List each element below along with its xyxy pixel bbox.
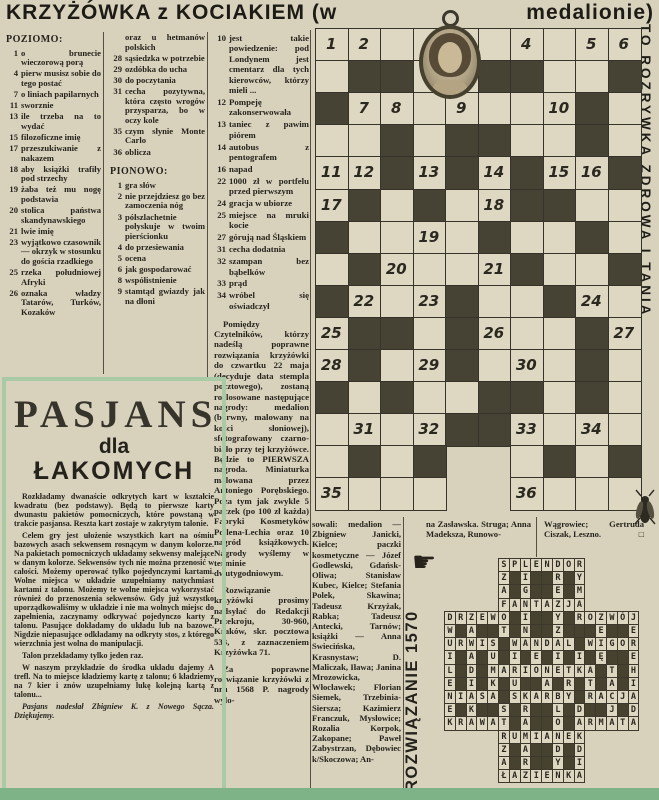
clue-item: 9stamtąd gwiazdy jak na dłoni bbox=[108, 287, 205, 306]
grid-cell[interactable] bbox=[608, 317, 642, 351]
grid-cell[interactable] bbox=[543, 124, 577, 158]
magazine-puzzle-page: KRZYŻÓWKA z KOCIAKIEM (w medalionie) TO … bbox=[0, 0, 659, 800]
grid-cell[interactable] bbox=[380, 92, 414, 126]
clue-item: 21lwie imię bbox=[4, 227, 101, 237]
previous-results-paragraph: Za poprawne rozwiązanie krzyżówki z nru … bbox=[214, 664, 309, 706]
grid-cell-black bbox=[478, 381, 512, 415]
clue-text: 1000 zł w portfelu przed pierwszym bbox=[229, 176, 309, 197]
pasjans-paragraph: Talon przekładamy tylko jeden raz. bbox=[14, 651, 214, 660]
grid-cell[interactable] bbox=[575, 477, 609, 511]
grid-cell[interactable] bbox=[543, 92, 577, 126]
grid-cell[interactable] bbox=[478, 253, 512, 287]
clue-number: 4 bbox=[108, 243, 125, 253]
solution-cell-letter: K bbox=[574, 730, 586, 744]
clue-text: górują nad Śląskiem bbox=[229, 232, 309, 242]
clue-number: 21 bbox=[4, 227, 21, 237]
grid-cell[interactable] bbox=[575, 445, 609, 479]
grid-cell[interactable] bbox=[348, 477, 382, 511]
clue-number: 34 bbox=[212, 290, 229, 311]
clue-item: 2nie przejdziesz go bez zamoczenia nóg bbox=[108, 192, 205, 211]
clue-item: 25miejsce na mruki kocie bbox=[212, 210, 309, 231]
grid-cell-black bbox=[315, 92, 349, 126]
clue-item: 31cecha pozytywna, która często wrogów p… bbox=[108, 87, 205, 125]
grid-cell[interactable] bbox=[608, 413, 642, 447]
clue-text: o liniach papilarnych bbox=[21, 90, 101, 100]
clue-item: 26oznaka władzy Tatarów, Turków, Kozaków bbox=[4, 289, 101, 318]
clue-text: wyjątkowo czasownik — okrzyk w stosunku … bbox=[21, 238, 101, 267]
grid-cell-black bbox=[510, 253, 544, 287]
clue-number: 23 bbox=[4, 238, 21, 267]
clues-column-3: 10jest takie powiedzenie: pod Londynem j… bbox=[212, 33, 309, 711]
clue-item: 13ile trzeba na to wydać bbox=[4, 112, 101, 131]
grid-cell[interactable] bbox=[510, 477, 544, 511]
winners-column-3-text: Wągrowiec; Gertruda Ciszak, Leszno. bbox=[544, 519, 644, 539]
clue-number: 1 bbox=[4, 49, 21, 68]
grid-cell[interactable] bbox=[543, 349, 577, 383]
clue-text: taniec z pawim piórem bbox=[229, 119, 309, 140]
clue-text: sąsiedzka w potrzebie bbox=[125, 54, 205, 64]
grid-cell[interactable] bbox=[608, 92, 642, 126]
clue-item: 20stolica państwa skandynawskiego bbox=[4, 206, 101, 225]
clue-text: ocena bbox=[125, 254, 205, 264]
grid-cell[interactable] bbox=[413, 413, 447, 447]
clue-text: półszlachetnie połyskuje w twoim pierści… bbox=[125, 213, 205, 242]
clue-item: 19żaba też mu nogę podstawia bbox=[4, 185, 101, 204]
clue-item: 14autobus z pentografem bbox=[212, 142, 309, 163]
medallion-portrait bbox=[417, 10, 483, 98]
grid-cell[interactable] bbox=[348, 381, 382, 415]
grid-cell-black bbox=[575, 381, 609, 415]
grid-cell[interactable] bbox=[608, 28, 642, 62]
grid-cell[interactable] bbox=[543, 253, 577, 287]
solution-cell-letter: I bbox=[574, 756, 586, 770]
grid-cell-black bbox=[348, 445, 382, 479]
grid-cell[interactable] bbox=[380, 413, 414, 447]
grid-cell[interactable] bbox=[608, 381, 642, 415]
clues-column-1: POZIOMO: 1o brunecie wieczorową porą4pie… bbox=[4, 33, 101, 319]
clue-number: 13 bbox=[4, 112, 21, 131]
solution-cell-letter: A bbox=[574, 598, 586, 612]
grid-cell[interactable] bbox=[413, 253, 447, 287]
pasjans-text: Rozkładamy dwanaście odkrytych kart w ks… bbox=[14, 492, 214, 720]
grid-cell-black bbox=[510, 189, 544, 223]
page-title: KRZYŻÓWKA z KOCIAKIEM (w medalionie) bbox=[6, 1, 654, 25]
grid-cell-black bbox=[478, 413, 512, 447]
grid-cell[interactable] bbox=[608, 189, 642, 223]
grid-cell[interactable] bbox=[575, 28, 609, 62]
grid-cell[interactable] bbox=[575, 253, 609, 287]
clue-item: 24gracja w ubiorze bbox=[212, 198, 309, 208]
grid-cell[interactable] bbox=[445, 253, 479, 287]
clue-number: 3 bbox=[108, 213, 125, 242]
grid-cell[interactable] bbox=[575, 60, 609, 94]
clue-number: 25 bbox=[212, 210, 229, 231]
grid-cell[interactable] bbox=[510, 92, 544, 126]
clue-number: 19 bbox=[4, 185, 21, 204]
grid-cell-black bbox=[445, 413, 479, 447]
grid-cell[interactable] bbox=[348, 285, 382, 319]
pointing-hand-icon: ☛ bbox=[412, 549, 436, 576]
clue-number: 10 bbox=[212, 33, 229, 95]
clue-number: 22 bbox=[212, 176, 229, 197]
clue-item: oraz u hetmanów polskich bbox=[108, 33, 205, 52]
grid-cell[interactable] bbox=[413, 349, 447, 383]
crossword-grid: 1234567891011121314151617181920212223242… bbox=[315, 28, 641, 510]
clue-number: 35 bbox=[108, 127, 125, 146]
clue-item: 3półszlachetnie połyskuje w twoim pierśc… bbox=[108, 213, 205, 242]
clue-item: 15filozoficzne imię bbox=[4, 133, 101, 143]
clue-item: 5ocena bbox=[108, 254, 205, 264]
pasjans-paragraph: W naszym przykładzie do środka układu da… bbox=[14, 663, 214, 699]
clue-number: 8 bbox=[108, 276, 125, 286]
clue-number: 4 bbox=[4, 69, 21, 88]
clue-item: 11sworznie bbox=[4, 101, 101, 111]
grid-cell[interactable] bbox=[575, 189, 609, 223]
grid-cell[interactable] bbox=[478, 189, 512, 223]
grid-cell-black bbox=[510, 381, 544, 415]
pasjans-box: PASJANS dla ŁAKOMYCH Rozkładamy dwanaści… bbox=[2, 377, 226, 800]
grid-cell[interactable] bbox=[413, 477, 447, 511]
clue-text: filozoficzne imię bbox=[21, 133, 101, 143]
clue-number: 36 bbox=[108, 148, 125, 158]
grid-cell-black bbox=[608, 60, 642, 94]
clue-number: 28 bbox=[108, 54, 125, 64]
clue-number: 18 bbox=[4, 165, 21, 184]
clue-item: 23wyjątkowo czasownik — okrzyk w stosunk… bbox=[4, 238, 101, 267]
clue-text: aby książki trafiły pod strzechy bbox=[21, 165, 101, 184]
grid-cell[interactable] bbox=[413, 156, 447, 190]
clue-item: 6jak gospodarować bbox=[108, 265, 205, 275]
clue-text: Pompeję zakonserwowała bbox=[229, 97, 309, 118]
solution-cell-letter: Y bbox=[574, 571, 586, 585]
grid-cell-black bbox=[413, 189, 447, 223]
clue-text: czym słynie Monte Carlo bbox=[125, 127, 205, 146]
grid-cell-black bbox=[608, 445, 642, 479]
pasjans-subtitle-lakomych: ŁAKOMYCH bbox=[14, 458, 214, 485]
grid-cell[interactable] bbox=[510, 349, 544, 383]
clue-item: 36oblicza bbox=[108, 148, 205, 158]
grid-cell[interactable] bbox=[478, 317, 512, 351]
clue-number: 13 bbox=[212, 119, 229, 140]
clue-text: cecha pozytywna, która często wrogów prz… bbox=[125, 87, 205, 125]
grid-cell[interactable] bbox=[315, 156, 349, 190]
winners-column-1: sowali: medalion — Zbigniew Janicki, Kie… bbox=[312, 519, 401, 764]
medallion-oval bbox=[419, 25, 481, 99]
clue-text: szampan bez bąbelków bbox=[229, 256, 309, 277]
clue-text: miejsce na mruki kocie bbox=[229, 210, 309, 231]
pasjans-credit: Pasjans nadesłał Zbigniew K. z Nowego Są… bbox=[14, 702, 214, 720]
clue-text: przeszukiwanie z nakazem bbox=[21, 144, 101, 163]
clue-text: stolica państwa skandynawskiego bbox=[21, 206, 101, 225]
clue-item: 30do poczytania bbox=[108, 76, 205, 86]
grid-cell[interactable] bbox=[608, 124, 642, 158]
clue-text: gra słów bbox=[125, 181, 205, 191]
grid-cell[interactable] bbox=[380, 349, 414, 383]
grid-cell[interactable] bbox=[543, 60, 577, 94]
clue-item: 13taniec z pawim piórem bbox=[212, 119, 309, 140]
clue-item: 28sąsiedzka w potrzebie bbox=[108, 54, 205, 64]
clue-number: 25 bbox=[4, 268, 21, 287]
grid-cell[interactable] bbox=[510, 221, 544, 255]
clue-number: 11 bbox=[4, 101, 21, 111]
grid-cell[interactable] bbox=[348, 92, 382, 126]
grid-cell-black bbox=[315, 221, 349, 255]
solution-cell-letter: M bbox=[574, 584, 586, 598]
grid-cell-black bbox=[445, 156, 479, 190]
portrait-bust bbox=[433, 80, 467, 97]
pasjans-paragraph: Rozkładamy dwanaście odkrytych kart w ks… bbox=[14, 492, 214, 528]
grid-cell-black bbox=[315, 285, 349, 319]
clue-item: 1o brunecie wieczorową porą bbox=[4, 49, 101, 68]
grid-cell[interactable] bbox=[380, 285, 414, 319]
clue-item: 25rzeka południowej Afryki bbox=[4, 268, 101, 287]
grid-cell[interactable] bbox=[478, 285, 512, 319]
clue-item: 33prąd bbox=[212, 278, 309, 288]
clue-item: 29ozdóbka do ucha bbox=[108, 65, 205, 75]
clue-number: 2 bbox=[108, 192, 125, 211]
grid-cell[interactable] bbox=[380, 28, 414, 62]
solution-cell-letter: R bbox=[628, 637, 640, 651]
portrait-face bbox=[438, 42, 462, 73]
solution-cell-letter: A bbox=[628, 690, 640, 704]
solution-grid: SPLENDORZIRYAGEMFANTAZJADRZEWOIYROZWÓJWA… bbox=[444, 558, 640, 784]
grid-cell[interactable] bbox=[348, 28, 382, 62]
grid-cell-black bbox=[445, 285, 479, 319]
clue-item: 34wróbel się oświadczył bbox=[212, 290, 309, 311]
clue-number: 31 bbox=[108, 87, 125, 125]
grid-cell-black bbox=[413, 445, 447, 479]
clue-item: 10jest takie powiedzenie: pod Londynem j… bbox=[212, 33, 309, 95]
grid-cell-black bbox=[380, 60, 414, 94]
clue-text: do poczytania bbox=[125, 76, 205, 86]
clue-text: gracja w ubiorze bbox=[229, 198, 309, 208]
grid-cell[interactable] bbox=[315, 317, 349, 351]
grid-cell[interactable] bbox=[510, 28, 544, 62]
grid-cell[interactable] bbox=[543, 477, 577, 511]
grid-cell[interactable] bbox=[608, 285, 642, 319]
grid-cell-black bbox=[543, 445, 577, 479]
clue-number: 5 bbox=[108, 254, 125, 264]
down-clue-list-cont: 10jest takie powiedzenie: pod Londynem j… bbox=[212, 33, 309, 311]
clue-item: 12Pompeję zakonserwowała bbox=[212, 97, 309, 118]
grid-cell[interactable] bbox=[510, 124, 544, 158]
clue-item: 31cecha dodatnia bbox=[212, 244, 309, 254]
grid-cell-black bbox=[575, 124, 609, 158]
grid-cell[interactable] bbox=[380, 477, 414, 511]
clue-number: 29 bbox=[108, 65, 125, 75]
grid-cell[interactable] bbox=[315, 477, 349, 511]
clue-item: 1gra słów bbox=[108, 181, 205, 191]
clue-item: 4pierw musisz sobie do tego postać bbox=[4, 69, 101, 88]
clue-item: 16napad bbox=[212, 164, 309, 174]
grid-cell-black bbox=[445, 349, 479, 383]
grid-cell-black bbox=[380, 156, 414, 190]
grid-cell[interactable] bbox=[543, 413, 577, 447]
clue-text: oznaka władzy Tatarów, Turków, Kozaków bbox=[21, 289, 101, 318]
grid-cell-black bbox=[543, 285, 577, 319]
grid-cell-black bbox=[575, 92, 609, 126]
grid-cell[interactable] bbox=[478, 349, 512, 383]
grid-cell-black bbox=[510, 156, 544, 190]
column-divider bbox=[310, 30, 311, 788]
clue-number: 20 bbox=[4, 206, 21, 225]
grid-cell[interactable] bbox=[478, 156, 512, 190]
clue-number: 31 bbox=[212, 244, 229, 254]
grid-cell[interactable] bbox=[510, 445, 544, 479]
pasjans-title: PASJANS bbox=[14, 395, 214, 435]
grid-cell[interactable] bbox=[413, 124, 447, 158]
grid-cell-black bbox=[315, 381, 349, 415]
grid-cell[interactable] bbox=[380, 445, 414, 479]
clue-text: do przesiewania bbox=[125, 243, 205, 253]
grid-cell-black bbox=[543, 189, 577, 223]
clue-text: napad bbox=[229, 164, 309, 174]
grid-cell-black bbox=[575, 221, 609, 255]
clue-number: 27 bbox=[212, 232, 229, 242]
grid-cell[interactable] bbox=[543, 221, 577, 255]
grid-cell[interactable] bbox=[315, 60, 349, 94]
grid-cell[interactable] bbox=[348, 156, 382, 190]
grid-cell[interactable] bbox=[445, 189, 479, 223]
clue-item: 17przeszukiwanie z nakazem bbox=[4, 144, 101, 163]
grid-cell-black bbox=[608, 156, 642, 190]
clue-item: 8współistnienie bbox=[108, 276, 205, 286]
clue-number: 16 bbox=[212, 164, 229, 174]
solution-cell-letter: R bbox=[574, 558, 586, 572]
grid-cell[interactable] bbox=[315, 253, 349, 287]
grid-cell[interactable] bbox=[445, 381, 479, 415]
grid-cell-black bbox=[380, 317, 414, 351]
clue-number: 9 bbox=[108, 287, 125, 306]
grid-cell[interactable] bbox=[608, 349, 642, 383]
column-divider bbox=[103, 32, 104, 374]
grid-cell[interactable] bbox=[510, 413, 544, 447]
clue-text: wróbel się oświadczył bbox=[229, 290, 309, 311]
clue-text: jest takie powiedzenie: pod Londynem jes… bbox=[229, 33, 309, 95]
clue-number: 26 bbox=[4, 289, 21, 318]
clue-number: 33 bbox=[212, 278, 229, 288]
submission-paragraph: Rozwiązanie krzyżówki prosimy nadsyłać d… bbox=[214, 585, 309, 658]
grid-cell[interactable] bbox=[608, 221, 642, 255]
solution-cell-letter: H bbox=[628, 664, 640, 678]
clue-text: ozdóbka do ucha bbox=[125, 65, 205, 75]
clue-text: cecha dodatnia bbox=[229, 244, 309, 254]
page-title-left: KRZYŻÓWKA z KOCIAKIEM (w bbox=[6, 1, 337, 25]
grid-cell[interactable] bbox=[315, 28, 349, 62]
clue-text: rzeka południowej Afryki bbox=[21, 268, 101, 287]
winners-column-2: na Zasławska. Struga; Anna Madeksza, Run… bbox=[426, 519, 531, 539]
clue-text: nie przejdziesz go bez zamoczenia nóg bbox=[125, 192, 205, 211]
across-clue-list: 1o brunecie wieczorową porą4pierw musisz… bbox=[4, 49, 101, 318]
grid-cell[interactable] bbox=[315, 349, 349, 383]
across-clue-list-cont: oraz u hetmanów polskich28sąsiedzka w po… bbox=[108, 33, 205, 157]
clue-item: 221000 zł w portfelu przed pierwszym bbox=[212, 176, 309, 197]
grid-cell[interactable] bbox=[510, 285, 544, 319]
grid-cell-black bbox=[445, 317, 479, 351]
grid-cell[interactable] bbox=[315, 413, 349, 447]
clue-text: jak gospodarować bbox=[125, 265, 205, 275]
clue-text: oblicza bbox=[125, 148, 205, 158]
solution-label: ROZWIĄZANIE 1570 bbox=[403, 580, 429, 792]
clue-number: 15 bbox=[4, 133, 21, 143]
grid-cell[interactable] bbox=[348, 221, 382, 255]
clue-number: 30 bbox=[108, 76, 125, 86]
clue-number: 24 bbox=[212, 198, 229, 208]
grid-cell-black bbox=[478, 124, 512, 158]
grid-cell[interactable] bbox=[575, 156, 609, 190]
fly-illustration-icon bbox=[633, 480, 657, 532]
grid-cell-black bbox=[348, 317, 382, 351]
grid-cell[interactable] bbox=[413, 285, 447, 319]
grid-cell-black bbox=[445, 124, 479, 158]
solution-cell-letter: J bbox=[628, 611, 640, 625]
grid-cell[interactable] bbox=[315, 124, 349, 158]
grid-cell[interactable] bbox=[575, 413, 609, 447]
solution-cell-letter: D bbox=[628, 703, 640, 717]
grid-cell[interactable] bbox=[380, 253, 414, 287]
clue-item: 32szampan bez bąbelków bbox=[212, 256, 309, 277]
grid-cell[interactable] bbox=[315, 189, 349, 223]
prize-paragraph: Pomiędzy Czytelników, którzy nadeślą pop… bbox=[214, 319, 309, 579]
grid-cell[interactable] bbox=[413, 381, 447, 415]
grid-cell-black bbox=[608, 253, 642, 287]
clues-column-2: oraz u hetmanów polskich28sąsiedzka w po… bbox=[108, 33, 205, 308]
grid-cell-black bbox=[348, 253, 382, 287]
grid-cell[interactable] bbox=[413, 221, 447, 255]
grid-cell[interactable] bbox=[380, 221, 414, 255]
clue-text: sworznie bbox=[21, 101, 101, 111]
clue-text: ile trzeba na to wydać bbox=[21, 112, 101, 131]
grid-cell[interactable] bbox=[380, 189, 414, 223]
grid-cell[interactable] bbox=[445, 221, 479, 255]
clue-number bbox=[108, 33, 125, 52]
clue-number: 14 bbox=[212, 142, 229, 163]
grid-cell[interactable] bbox=[543, 28, 577, 62]
clue-number: 7 bbox=[4, 90, 21, 100]
grid-cell[interactable] bbox=[413, 317, 447, 351]
grid-cell[interactable] bbox=[348, 124, 382, 158]
across-header: POZIOMO: bbox=[6, 35, 101, 45]
grid-cell-black bbox=[478, 221, 512, 255]
grid-cell[interactable] bbox=[543, 381, 577, 415]
grid-cell[interactable] bbox=[575, 285, 609, 319]
solution-cell-letter: I bbox=[628, 677, 640, 691]
clue-item: 4do przesiewania bbox=[108, 243, 205, 253]
clue-text: lwie imię bbox=[21, 227, 101, 237]
grid-cell-black bbox=[575, 349, 609, 383]
grid-cell-black bbox=[348, 60, 382, 94]
grid-cell[interactable] bbox=[543, 317, 577, 351]
down-header: PIONOWO: bbox=[110, 167, 205, 177]
grid-cell[interactable] bbox=[315, 445, 349, 479]
clue-text: żaba też mu nogę podstawia bbox=[21, 185, 101, 204]
clue-text: współistnienie bbox=[125, 276, 205, 286]
clue-text: oraz u hetmanów polskich bbox=[125, 33, 205, 52]
grid-cell[interactable] bbox=[510, 317, 544, 351]
solution-cell-letter: E bbox=[628, 624, 640, 638]
solution-cell-letter: A bbox=[574, 769, 586, 783]
grid-cell[interactable] bbox=[348, 413, 382, 447]
grid-cell-black bbox=[348, 189, 382, 223]
clue-item: 7o liniach papilarnych bbox=[4, 90, 101, 100]
solution-cell-letter: D bbox=[574, 743, 586, 757]
clue-number: 1 bbox=[108, 181, 125, 191]
pasjans-subtitle-dla: dla bbox=[14, 435, 214, 458]
page-title-right: medalionie) bbox=[526, 1, 654, 25]
clue-text: pierw musisz sobie do tego postać bbox=[21, 69, 101, 88]
grid-cell-black bbox=[380, 381, 414, 415]
grid-cell[interactable] bbox=[543, 156, 577, 190]
